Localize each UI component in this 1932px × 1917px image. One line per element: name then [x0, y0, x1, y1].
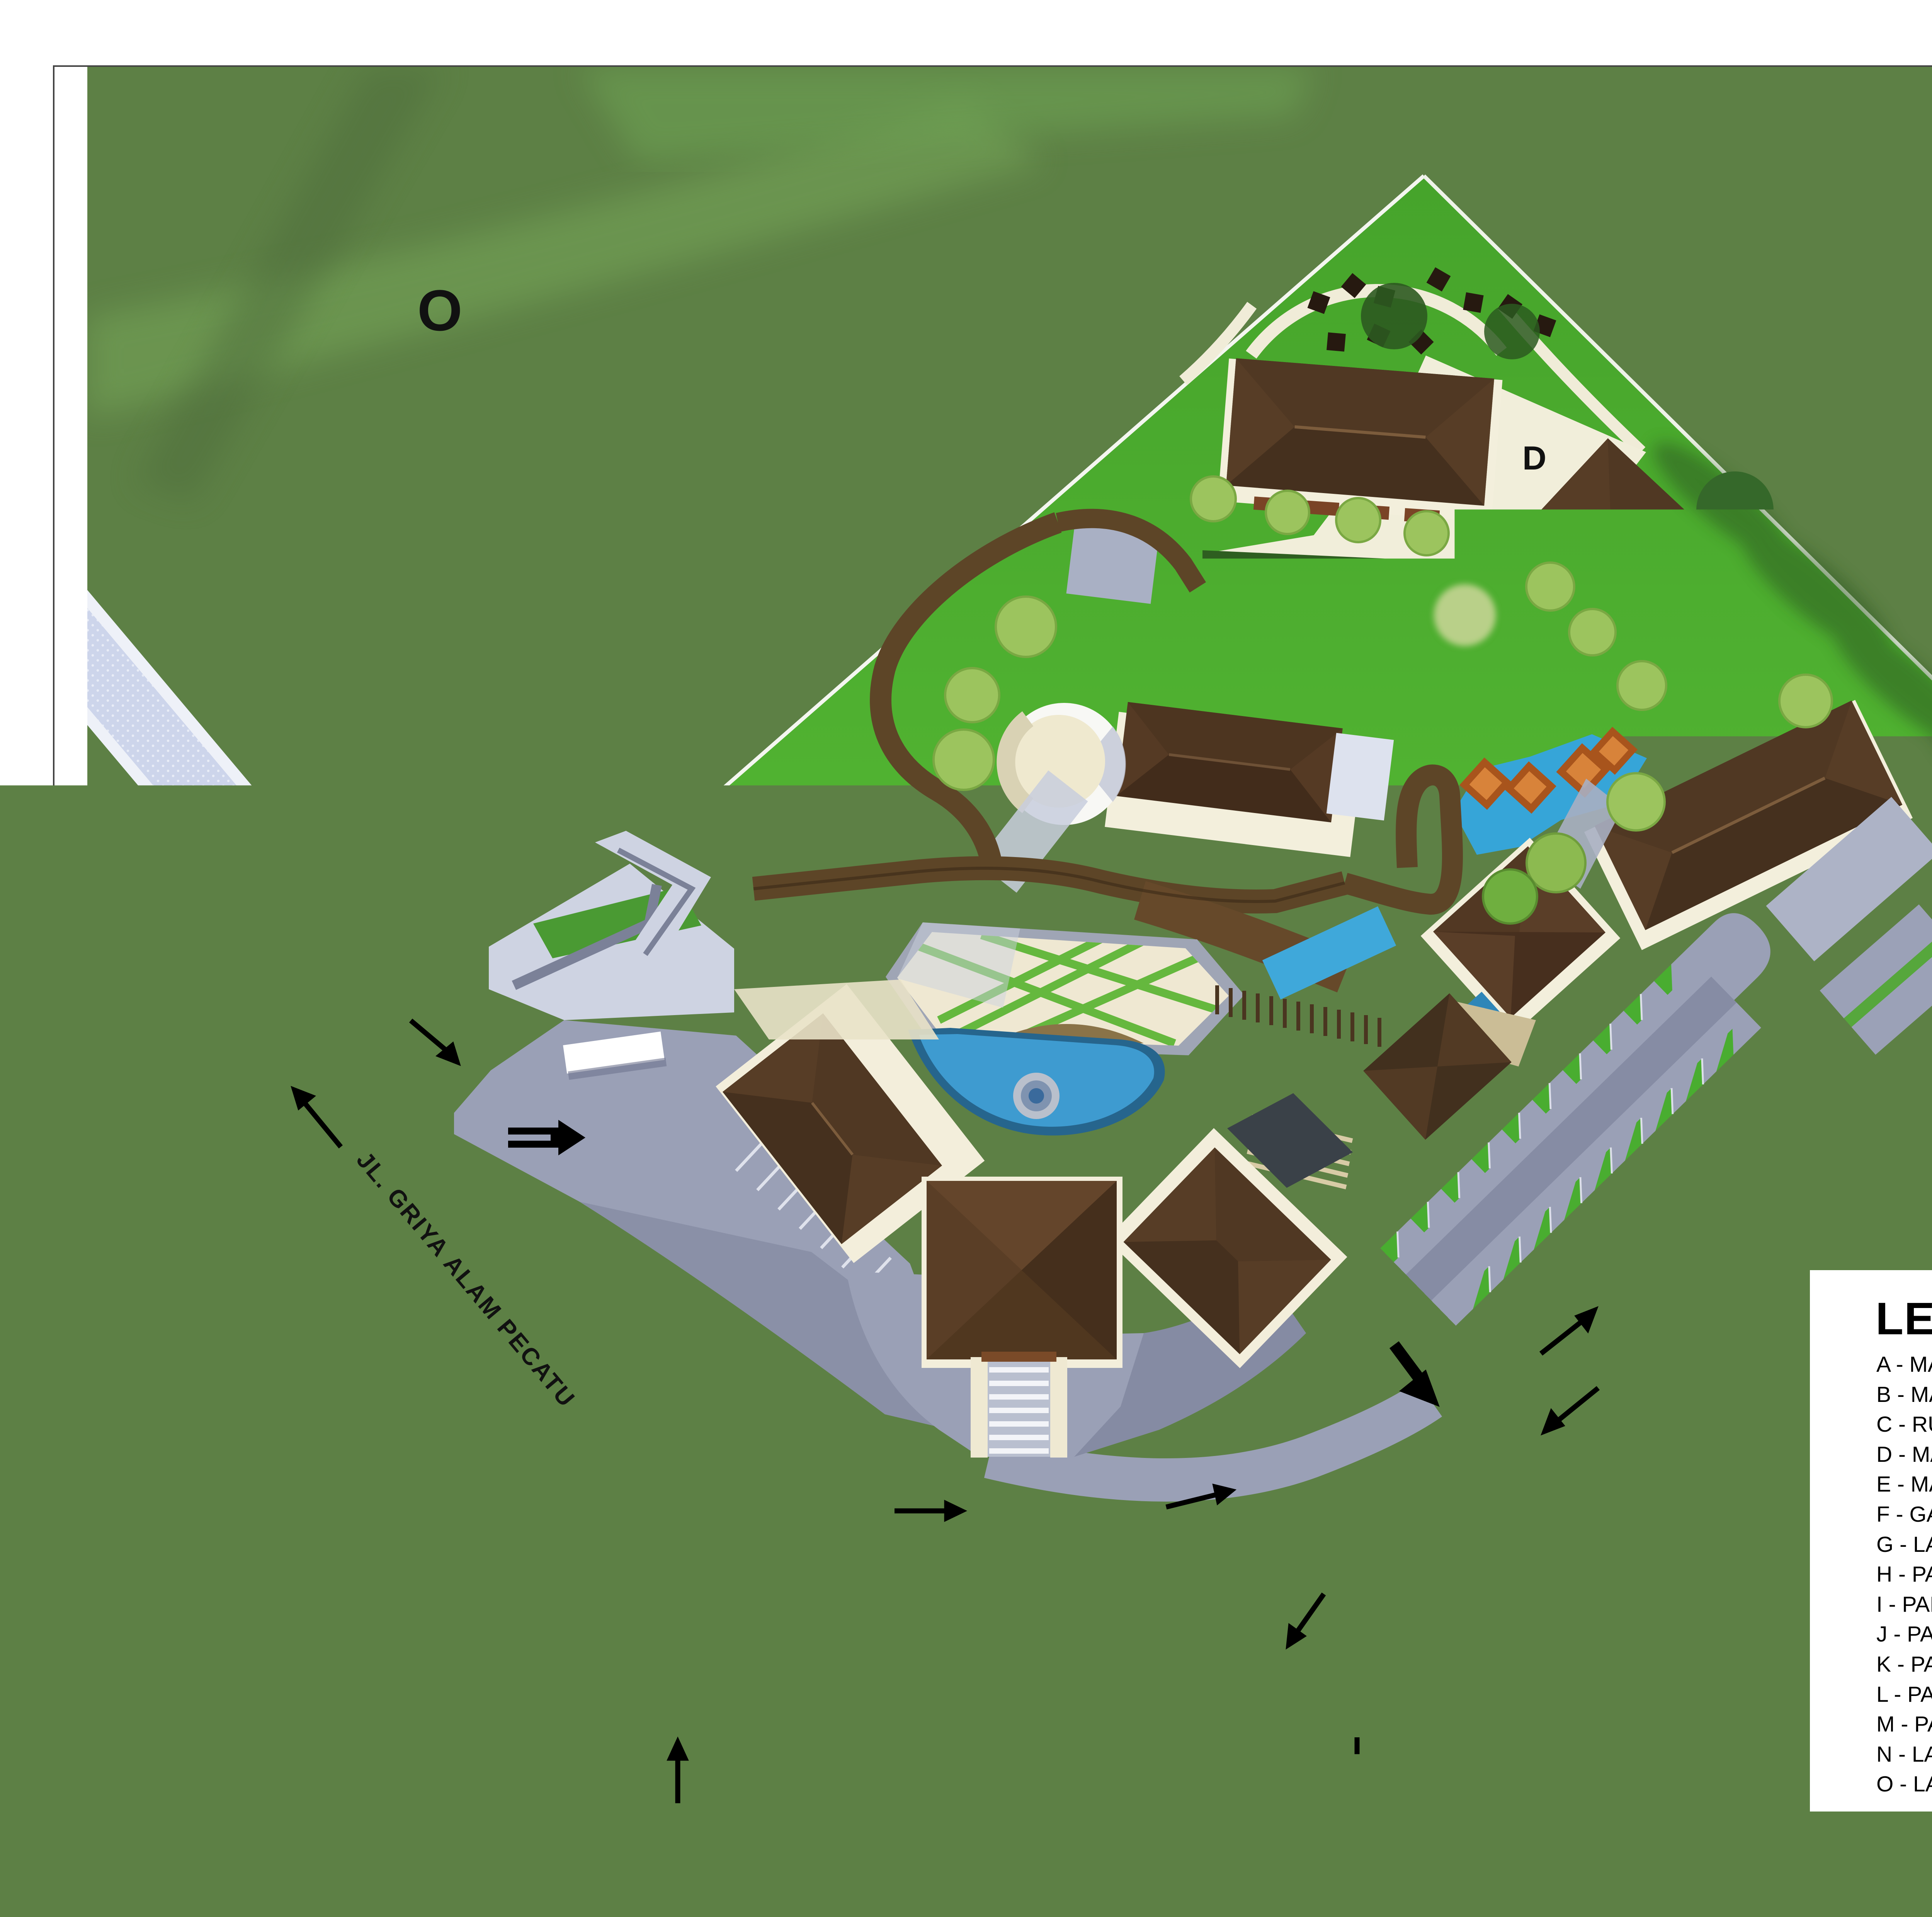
svg-text:H: H	[750, 1202, 770, 1233]
svg-text:A: A	[1005, 1282, 1029, 1319]
svg-text:N: N	[1716, 1441, 1753, 1499]
svg-text:E: E	[1735, 818, 1757, 856]
svg-text:B: B	[1221, 791, 1245, 828]
svg-text:D: D	[1522, 440, 1546, 477]
svg-text:G: G	[1048, 975, 1074, 1012]
svg-text:M: M	[1893, 928, 1917, 959]
svg-text:K: K	[632, 891, 652, 922]
svg-text:F: F	[1518, 771, 1537, 806]
svg-text:J: J	[582, 951, 597, 982]
svg-text:L: L	[1526, 1080, 1543, 1111]
svg-text:C: C	[1505, 929, 1529, 966]
svg-text:I: I	[626, 1065, 634, 1096]
svg-text:O: O	[417, 278, 463, 343]
svg-text:O: O	[473, 1462, 514, 1520]
